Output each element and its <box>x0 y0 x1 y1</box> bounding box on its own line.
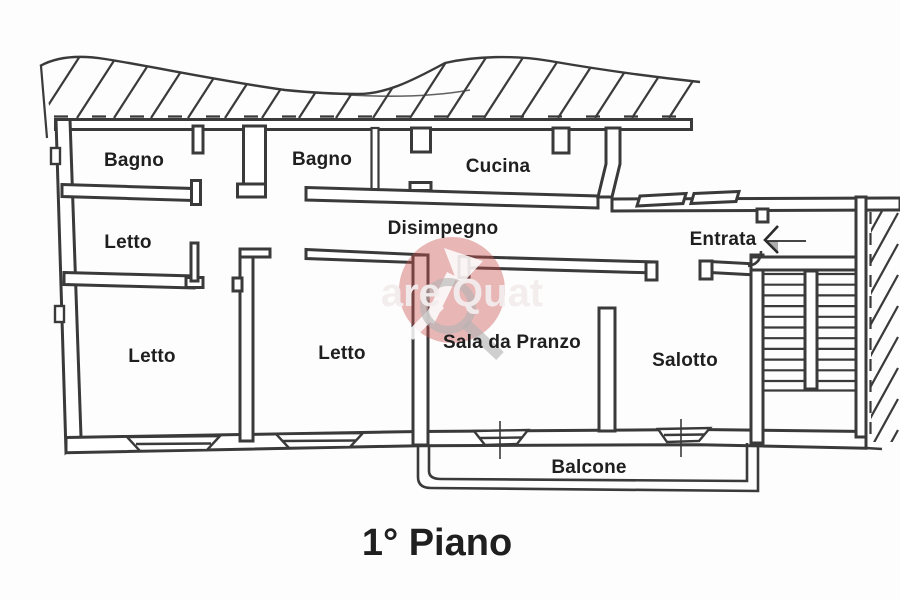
svg-text:Disimpegno: Disimpegno <box>388 218 499 239</box>
svg-text:Bagno: Bagno <box>292 149 352 170</box>
svg-text:Letto: Letto <box>128 346 175 367</box>
svg-text:Cucina: Cucina <box>466 156 531 177</box>
svg-text:Letto: Letto <box>104 232 151 253</box>
svg-text:Salotto: Salotto <box>652 350 718 371</box>
svg-text:Bagno: Bagno <box>104 150 164 171</box>
svg-text:are Quat: are Quat <box>381 271 543 315</box>
svg-text:1° Piano: 1° Piano <box>362 522 512 564</box>
svg-text:Balcone: Balcone <box>551 457 626 478</box>
svg-text:Entrata: Entrata <box>690 229 757 250</box>
svg-text:Sala da Pranzo: Sala da Pranzo <box>443 332 581 353</box>
svg-text:Letto: Letto <box>318 343 365 364</box>
